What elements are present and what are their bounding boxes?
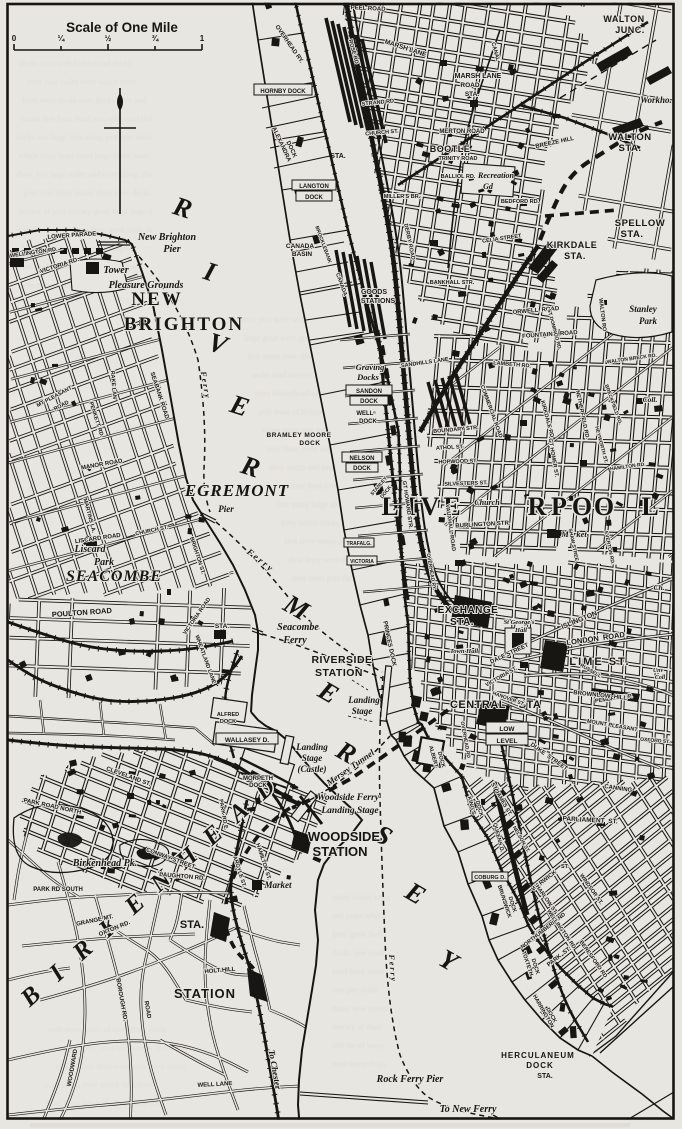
svg-text:STA.: STA.	[619, 143, 642, 154]
svg-text:Town Hall: Town Hall	[450, 648, 478, 655]
svg-text:Docks: Docks	[356, 372, 379, 382]
svg-text:L: L	[641, 492, 658, 521]
svg-text:DOCK: DOCK	[305, 195, 323, 201]
svg-text:STATION: STATION	[312, 844, 367, 859]
svg-text:WALLASEY D.: WALLASEY D.	[225, 737, 269, 744]
svg-text:WALTON: WALTON	[608, 132, 651, 143]
svg-text:LANGTON: LANGTON	[299, 184, 329, 190]
svg-text:and the of many: and the of many	[332, 1041, 387, 1050]
svg-text:Stanley: Stanley	[629, 304, 658, 314]
svg-text:GOODS: GOODS	[361, 289, 387, 296]
svg-text:Birkenhead Pk.: Birkenhead Pk.	[72, 858, 137, 869]
svg-text:Church: Church	[474, 498, 500, 507]
svg-text:BEDFORD RD.: BEDFORD RD.	[501, 199, 540, 205]
svg-text:Rock Ferry Pier: Rock Ferry Pier	[376, 1074, 444, 1085]
svg-text:trade along river which first: trade along river which first river	[44, 1081, 155, 1090]
svg-text:and years which: and years which	[332, 912, 387, 921]
svg-text:Tower: Tower	[103, 265, 128, 276]
svg-text:COBURG D.: COBURG D.	[474, 875, 506, 881]
svg-text:P: P	[551, 492, 567, 521]
svg-text:large great were great: large great were great	[244, 334, 317, 343]
svg-text:Coll.: Coll.	[643, 395, 658, 404]
svg-text:first many over shore: first many over shore	[247, 352, 319, 361]
svg-text:Seacombe: Seacombe	[277, 622, 319, 633]
svg-text:docks river with birkenhead do: docks river with birkenhead docks	[19, 59, 134, 68]
svg-text:DOCK: DOCK	[360, 399, 378, 405]
svg-text:TRINITY ROAD: TRINITY ROAD	[438, 156, 477, 162]
svg-text:Coll: Coll	[655, 675, 666, 681]
svg-text:BOOTLE: BOOTLE	[430, 144, 471, 154]
svg-text:TRAFALG.: TRAFALG.	[347, 541, 373, 547]
svg-text:Scale of One Mile: Scale of One Mile	[66, 20, 178, 35]
svg-text:ROAD: ROAD	[460, 82, 479, 89]
svg-text:(Castle): (Castle)	[298, 764, 327, 774]
svg-text:docks was large first along po: docks was large first along port port bi…	[15, 133, 174, 142]
svg-text:Hall: Hall	[514, 627, 527, 634]
svg-text:Workho.: Workho.	[640, 95, 672, 105]
svg-text:STA.: STA.	[215, 623, 230, 630]
svg-text:Ch.: Ch.	[653, 583, 664, 592]
svg-text:V: V	[421, 492, 440, 521]
svg-text:ST.: ST.	[561, 864, 569, 870]
svg-text:LIME ST.: LIME ST.	[569, 656, 630, 668]
svg-text:ferry first under river which: ferry first under river which ferry	[27, 78, 138, 87]
svg-text:STA.: STA.	[465, 91, 480, 98]
svg-text:PARK RD SOUTH: PARK RD SOUTH	[33, 887, 83, 893]
svg-text:DOCK: DOCK	[526, 1061, 554, 1070]
svg-text:head head years: head head years	[332, 967, 386, 976]
svg-text:JUNC.: JUNC.	[615, 25, 645, 35]
svg-text:with many trade of river trade: with many trade of river trade along	[48, 1025, 168, 1034]
svg-text:STA.: STA.	[564, 251, 586, 261]
svg-text:EGREMONT: EGREMONT	[184, 481, 289, 500]
svg-text:R: R	[528, 492, 547, 521]
svg-text:Market: Market	[264, 880, 292, 890]
svg-text:ALFRED: ALFRED	[217, 712, 239, 718]
svg-text:SANDON: SANDON	[356, 389, 382, 395]
svg-text:To New Ferry: To New Ferry	[440, 1104, 497, 1115]
svg-text:DOCK: DOCK	[299, 440, 320, 447]
svg-text:O: O	[594, 492, 614, 521]
svg-text:WALTON: WALTON	[603, 14, 644, 24]
svg-text:LEVEL: LEVEL	[497, 738, 518, 745]
svg-text:road many ships: road many ships	[332, 1060, 388, 1069]
svg-text:Gd: Gd	[483, 182, 494, 191]
svg-text:mersey of their: mersey of their	[332, 1023, 384, 1032]
svg-text:NELSON: NELSON	[349, 456, 374, 462]
svg-text:KIRKDALE: KIRKDALE	[547, 240, 598, 250]
svg-text:SPELLOW: SPELLOW	[615, 218, 665, 229]
svg-text:DOCK: DOCK	[359, 419, 377, 425]
svg-text:Park: Park	[94, 557, 114, 568]
svg-text:MILLER'S BR.: MILLER'S BR.	[384, 194, 421, 200]
svg-text:STA.: STA.	[537, 1073, 552, 1080]
svg-text:STATIONS: STATIONS	[361, 298, 396, 305]
svg-text:Landing: Landing	[347, 695, 380, 705]
svg-text:SEACOMBE: SEACOMBE	[66, 568, 162, 585]
svg-text:BALLIOL RD.: BALLIOL RD.	[441, 174, 476, 180]
svg-text:New Brighton: New Brighton	[137, 232, 197, 243]
svg-text:BASIN: BASIN	[292, 251, 313, 258]
svg-text:HERCULANEUM: HERCULANEUM	[501, 1051, 575, 1060]
svg-text:WELLⁿ: WELLⁿ	[356, 410, 376, 417]
svg-text:Landing Stage: Landing Stage	[320, 806, 379, 816]
svg-text:was pier trade: was pier trade	[332, 986, 380, 995]
svg-text:BRIGHTON: BRIGHTON	[124, 314, 244, 335]
svg-text:1: 1	[200, 34, 205, 43]
svg-text:Ferry: Ferry	[282, 635, 307, 646]
svg-text:½: ½	[105, 34, 112, 43]
svg-text:Stage: Stage	[352, 706, 373, 716]
svg-text:O: O	[572, 492, 592, 521]
svg-text:Park: Park	[639, 316, 658, 326]
svg-text:Pier: Pier	[218, 504, 234, 514]
svg-text:Woodside Ferry: Woodside Ferry	[317, 793, 380, 803]
svg-text:from great their: from great their	[332, 930, 385, 939]
svg-text:Landing: Landing	[295, 742, 328, 752]
svg-text:STA.: STA.	[621, 229, 644, 240]
svg-text:MERTON ROAD: MERTON ROAD	[439, 129, 485, 135]
svg-text:WOODSIDE: WOODSIDE	[308, 829, 381, 844]
svg-text:Liscard: Liscard	[73, 544, 106, 555]
svg-text:DOCK: DOCK	[220, 719, 236, 725]
svg-text:BRAMLEY MOORE: BRAMLEY MOORE	[267, 432, 332, 439]
svg-text:0: 0	[12, 34, 17, 43]
svg-text:STA.: STA.	[180, 919, 204, 931]
svg-text:shore line large under and riv: shore line large under and river along s…	[16, 170, 160, 179]
svg-text:HORNBY DOCK: HORNBY DOCK	[260, 89, 306, 95]
svg-text:MORPETH: MORPETH	[243, 776, 273, 782]
svg-text:DOCK: DOCK	[249, 783, 267, 789]
svg-text:mersey of port mersey great fr: mersey of port mersey great from large d…	[18, 207, 169, 216]
svg-text:Stage: Stage	[302, 753, 323, 763]
svg-text:NEW: NEW	[131, 289, 182, 310]
svg-text:CENTRAL: CENTRAL	[450, 699, 506, 711]
svg-text:from were docks over docks wer: from were docks over docks were and	[22, 96, 149, 105]
svg-text:Unv: Unv	[653, 668, 664, 674]
svg-text:Recreation: Recreation	[477, 171, 515, 180]
svg-text:LOW: LOW	[499, 726, 515, 733]
svg-text:Pier: Pier	[163, 244, 180, 255]
svg-text:MARSH LANE: MARSH LANE	[455, 73, 502, 80]
svg-text:VICTORIA: VICTORIA	[350, 559, 374, 565]
svg-text:port trade of liverpool: port trade of liverpool	[259, 408, 333, 417]
svg-text:Graving: Graving	[356, 362, 386, 372]
svg-text:RIVERSIDE: RIVERSIDE	[311, 654, 372, 666]
svg-text:STATION: STATION	[174, 986, 236, 1001]
svg-text:DOCK: DOCK	[353, 466, 371, 472]
svg-text:STATION: STATION	[315, 667, 363, 679]
svg-text:BANKHALL STR.: BANKHALL STR.	[430, 280, 475, 286]
svg-text:CANADA: CANADA	[286, 243, 314, 250]
svg-text:docks new road: docks new road	[332, 949, 385, 958]
svg-text:EXCHANGE: EXCHANGE	[438, 605, 499, 616]
svg-text:St George's: St George's	[504, 619, 535, 626]
svg-text:many new steam: many new steam	[332, 1004, 389, 1013]
svg-text:STA.: STA.	[450, 617, 474, 628]
